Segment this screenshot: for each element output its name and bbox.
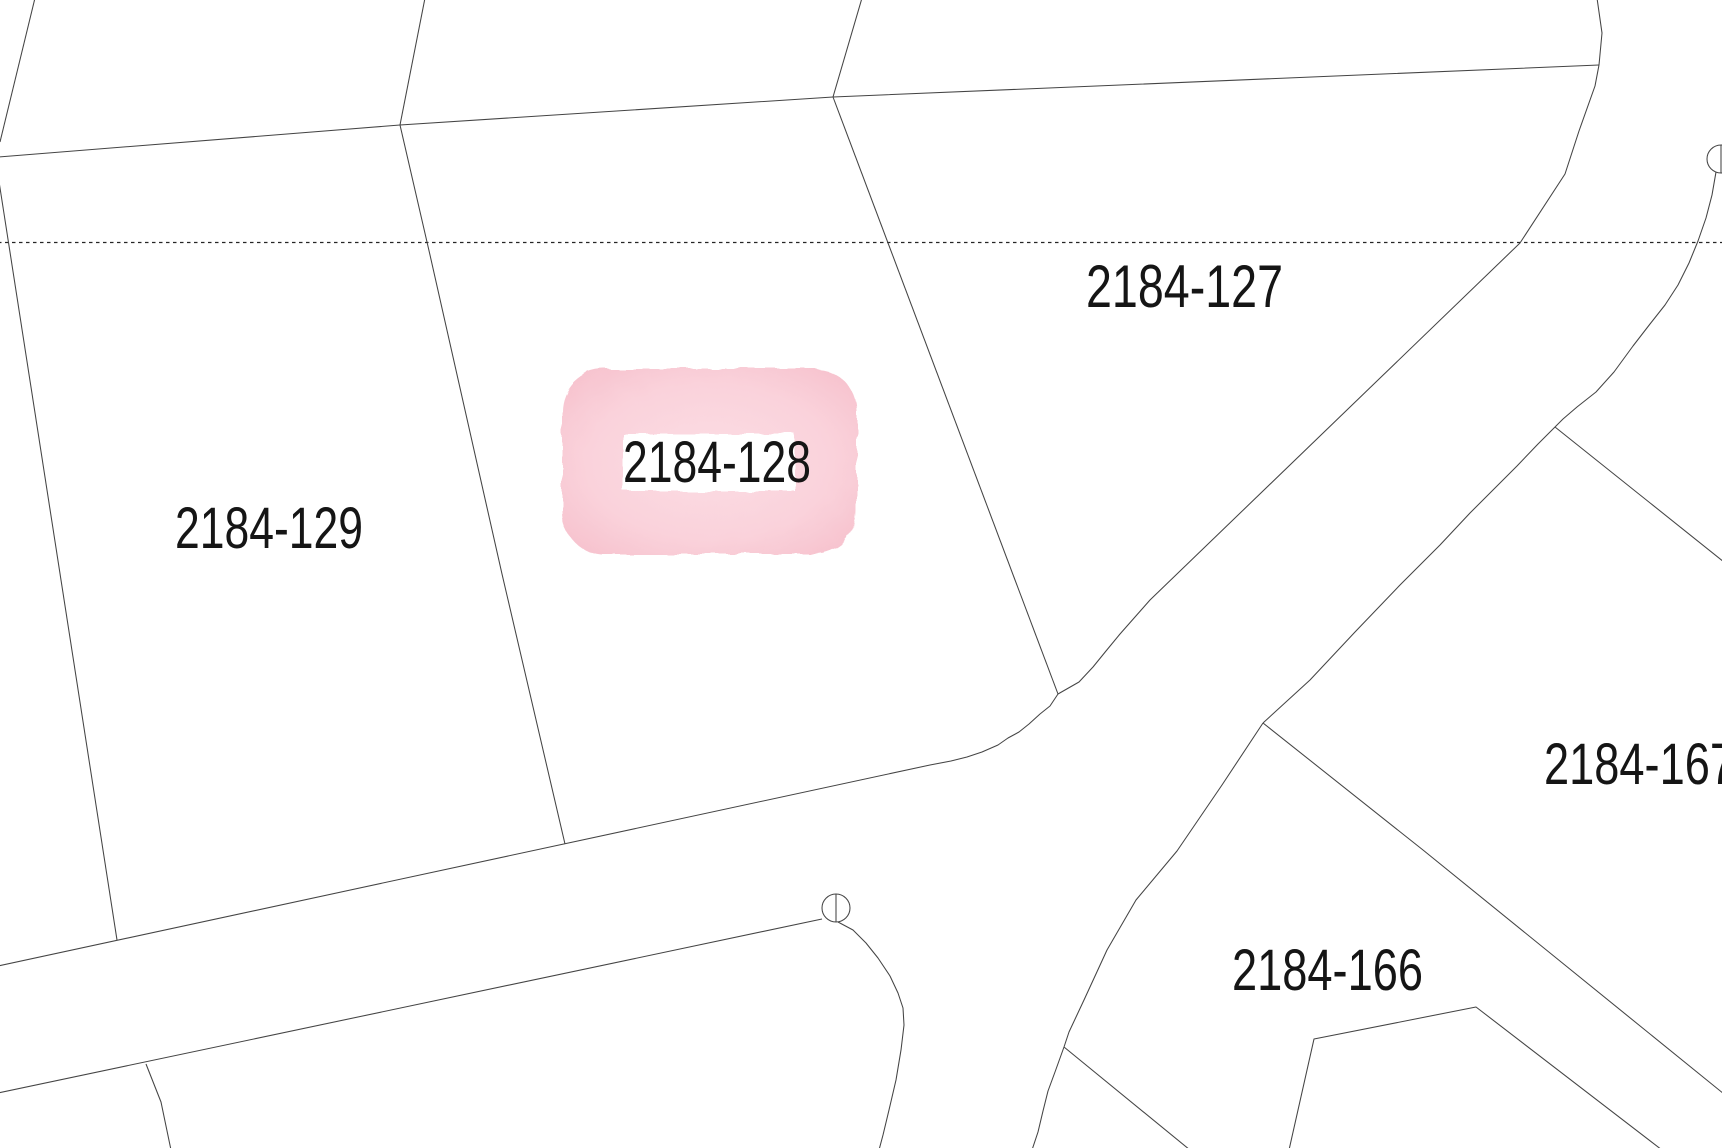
svg-text:2184-167: 2184-167 xyxy=(1544,732,1722,797)
svg-text:2184-127: 2184-127 xyxy=(1086,253,1283,320)
svg-text:2184-128: 2184-128 xyxy=(623,430,811,495)
svg-text:2184-166: 2184-166 xyxy=(1232,938,1423,1003)
svg-text:2184-129: 2184-129 xyxy=(175,496,363,561)
